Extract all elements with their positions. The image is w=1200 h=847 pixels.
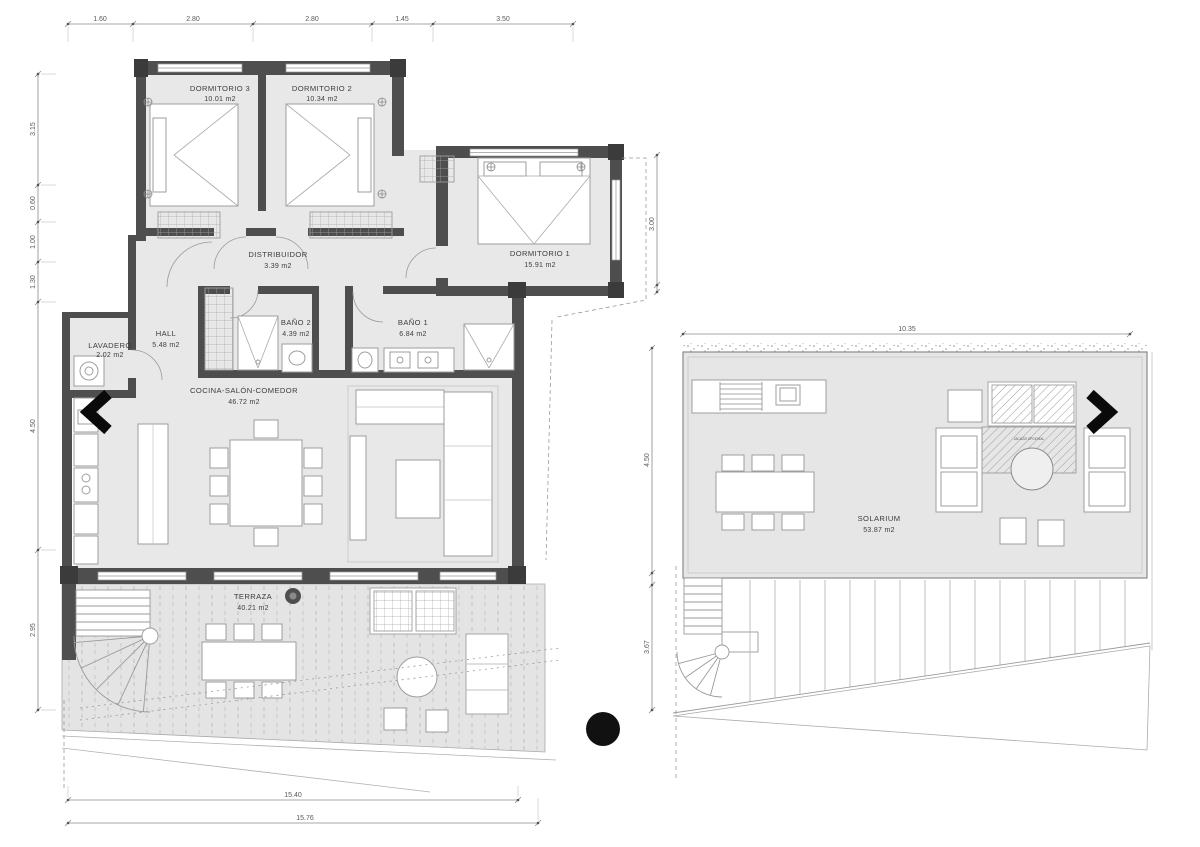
label-terraza: TERRAZA	[234, 592, 273, 601]
label-distribuidor: DISTRIBUIDOR	[248, 250, 307, 259]
label-hall: HALL	[156, 329, 177, 338]
dim-solarium-top-0: 10.35	[898, 326, 916, 333]
solarium-stair	[677, 578, 758, 697]
dim-top-0: 1.60	[93, 16, 107, 23]
terrace-dining-set	[202, 624, 296, 698]
dimension-bottom: 15.40 15.76	[65, 786, 541, 826]
dim-bottom-1: 15.76	[296, 815, 314, 822]
label-bano1: BAÑO 1	[398, 318, 428, 327]
area-terraza: 40.21 m2	[237, 605, 269, 612]
solarium-armchair	[948, 390, 982, 422]
dim-left-5: 2.95	[30, 623, 37, 637]
dim-top-3: 1.45	[395, 16, 409, 23]
terrace-side-table-2	[426, 710, 448, 732]
solarium-sofa-left	[936, 428, 982, 512]
area-cocina: 46.72 m2	[228, 399, 260, 406]
dim-top-4: 3.50	[496, 16, 510, 23]
bed-dormitorio2	[286, 104, 374, 206]
dimension-top: 1.60 2.80 2.80 1.45 3.50	[65, 16, 576, 42]
area-bano2: 4.39 m2	[282, 331, 309, 338]
label-dormitorio1: DORMITORIO 1	[510, 249, 570, 258]
dim-left-3: 1.30	[30, 275, 37, 289]
dim-bottom-0: 15.40	[284, 792, 302, 799]
dim-left-4: 4.50	[30, 419, 37, 433]
dimension-right-apartment: 3.00	[649, 152, 660, 295]
solarium-dining-set	[716, 455, 814, 530]
terrace-drain-symbol	[285, 588, 301, 604]
dim-left-1: 0.60	[30, 196, 37, 210]
dim-right-0: 3.00	[649, 217, 656, 231]
area-dormitorio1: 15.91 m2	[524, 262, 556, 269]
apartment-plan	[60, 59, 646, 792]
area-solarium: 53.87 m2	[863, 527, 895, 534]
floorplan-drawing: JACUZZI OPCIONAL	[0, 0, 1200, 847]
dim-left-2: 1.00	[30, 235, 37, 249]
solarium-side-table-1	[1000, 518, 1026, 544]
floorplan-page: JACUZZI OPCIONAL	[0, 0, 1200, 847]
solarium-counter	[692, 380, 826, 413]
terrace-side-table-1	[384, 708, 406, 730]
dimension-solarium-top: 10.35	[680, 326, 1133, 337]
terrace-round-table	[397, 657, 437, 697]
washer	[74, 356, 104, 386]
solarium-plan: JACUZZI OPCIONAL	[673, 343, 1152, 778]
jacuzzi-label: JACUZZI OPCIONAL	[1014, 437, 1045, 441]
dimension-left: 3.15 0.60 1.00 1.30 4.50 2.95	[30, 71, 56, 713]
area-dormitorio2: 10.34 m2	[306, 96, 338, 103]
solarium-hatched-loungers	[988, 382, 1076, 426]
area-distribuidor: 3.39 m2	[264, 263, 291, 270]
label-dormitorio2: DORMITORIO 2	[292, 84, 352, 93]
area-bano1: 6.84 m2	[399, 331, 426, 338]
dim-top-1: 2.80	[186, 16, 200, 23]
jacuzzi-circle	[1011, 448, 1053, 490]
label-bano2: BAÑO 2	[281, 318, 311, 327]
area-hall: 5.48 m2	[152, 342, 179, 349]
bed-dormitorio1	[478, 158, 590, 244]
dim-left-0: 3.15	[30, 122, 37, 136]
dimension-solarium-left: 4.50 3.67	[644, 345, 655, 713]
area-lavadero: 2.02 m2	[96, 352, 123, 359]
area-dormitorio3: 10.01 m2	[204, 96, 236, 103]
label-dormitorio3: DORMITORIO 3	[190, 84, 250, 93]
label-solarium: SOLARIUM	[858, 514, 901, 523]
solarium-side-table-2	[1038, 520, 1064, 546]
bed-dormitorio3	[150, 104, 238, 206]
solid-dot-marker	[586, 712, 620, 746]
label-cocina: COCINA-SALÓN-COMEDOR	[190, 386, 298, 395]
dim-solarium-left-1: 3.67	[644, 640, 651, 654]
kitchen-island	[138, 424, 168, 544]
dim-solarium-left-0: 4.50	[644, 453, 651, 467]
dim-top-2: 2.80	[305, 16, 319, 23]
roof-wedge	[673, 646, 1150, 750]
label-lavadero: LAVADERO	[88, 341, 131, 350]
solarium-sofa-right	[1084, 428, 1130, 512]
